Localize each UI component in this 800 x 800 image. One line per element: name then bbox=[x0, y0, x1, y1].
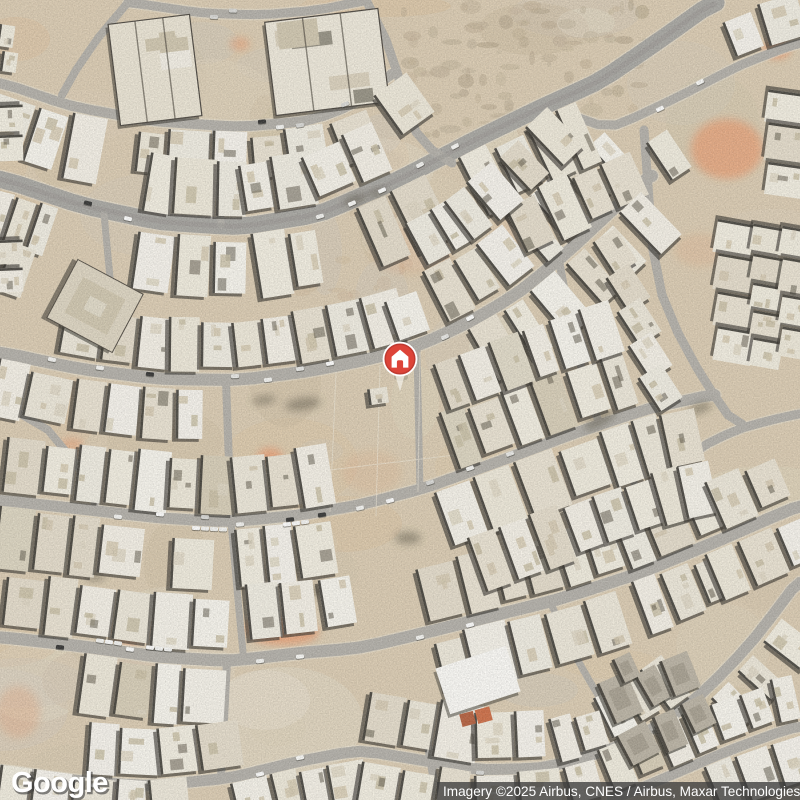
svg-text:Google: Google bbox=[11, 767, 108, 799]
svg-text:Imagery ©2025 Airbus, CNES / A: Imagery ©2025 Airbus, CNES / Airbus, Max… bbox=[443, 784, 800, 799]
